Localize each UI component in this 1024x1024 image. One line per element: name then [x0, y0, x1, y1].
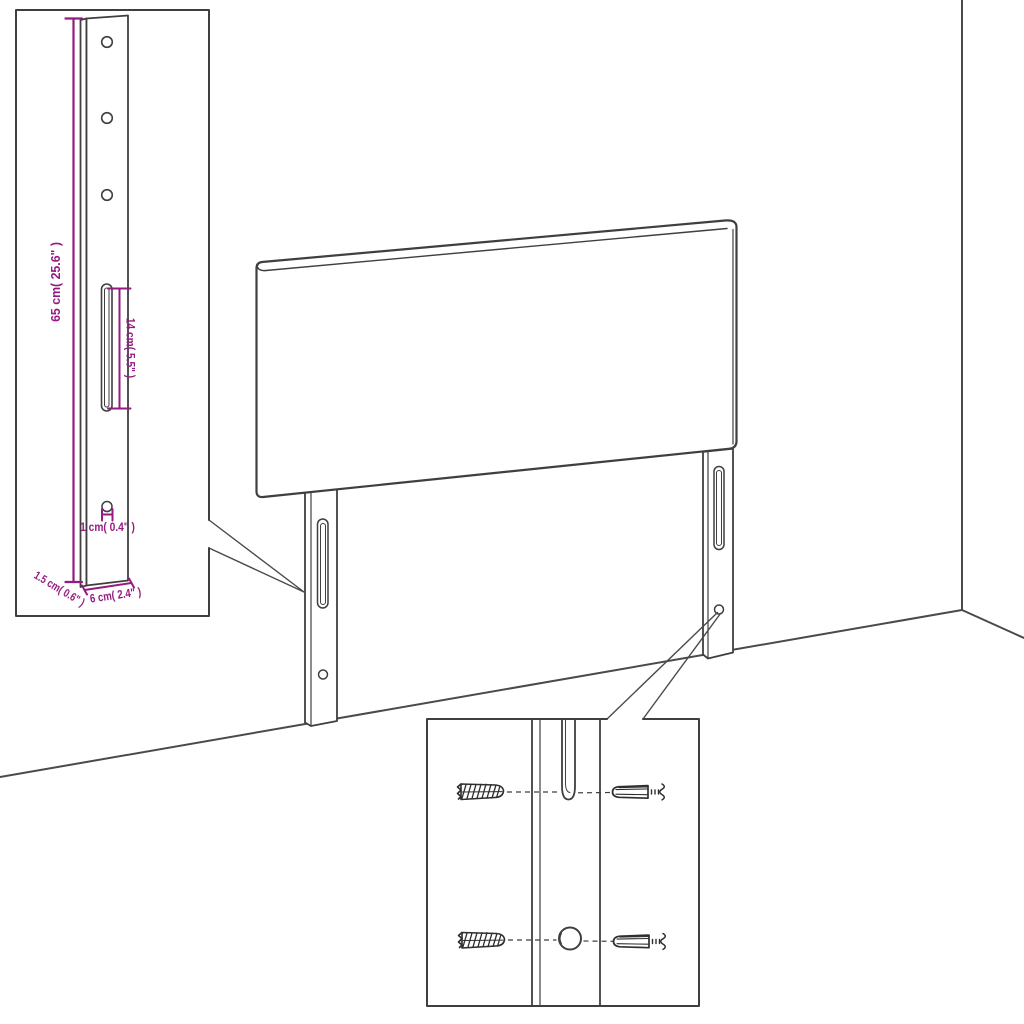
dim-height-label: 65 cm( 25.6" )	[49, 242, 63, 322]
leg-detail-drawing	[81, 16, 129, 588]
callout-lines-leg-detail	[209, 520, 304, 592]
floor-wall-line-left	[0, 610, 962, 777]
headboard-panel	[257, 220, 737, 497]
screw-hole	[102, 502, 112, 512]
headboard-leg-right	[703, 449, 733, 659]
mounting-slot	[714, 467, 724, 550]
screw-icon	[613, 784, 665, 800]
mounting-detail-inset	[427, 719, 699, 1006]
screw-hole	[102, 113, 113, 124]
dim-slot-label: 14 cm( 5.5" )	[123, 318, 136, 379]
dim-depth-label: 1.5 cm( 0.6" )	[31, 570, 86, 610]
screw-hole	[319, 670, 328, 679]
floor-wall-line-right	[962, 610, 1024, 638]
screw-icon	[614, 934, 666, 950]
leg-closeup-drawing	[532, 720, 600, 1005]
product-diagram-headboard: 65 cm( 25.6" ) 14 cm( 5.5" ) 1 cm( 0.4" …	[0, 0, 1024, 1024]
screw-hole	[102, 37, 113, 48]
mounting-slot	[318, 519, 329, 608]
dim-hole-label: 1 cm( 0.4" )	[80, 521, 135, 534]
wall-plug-icon	[458, 784, 504, 800]
inset-frame	[427, 719, 699, 1006]
screw-hole-closeup	[559, 928, 581, 950]
diagram-line-art: 65 cm( 25.6" ) 14 cm( 5.5" ) 1 cm( 0.4" …	[0, 0, 1024, 1024]
mounting-slot-closeup	[562, 720, 575, 800]
wall-plug-icon	[459, 933, 505, 949]
screw-hole	[102, 190, 113, 201]
alignment-dashed-lines	[507, 792, 613, 941]
headboard-leg-left	[305, 489, 337, 726]
screw-hole	[715, 605, 724, 614]
mounting-slot	[102, 284, 113, 411]
leg-detail-inset: 65 cm( 25.6" ) 14 cm( 5.5" ) 1 cm( 0.4" …	[16, 10, 209, 616]
